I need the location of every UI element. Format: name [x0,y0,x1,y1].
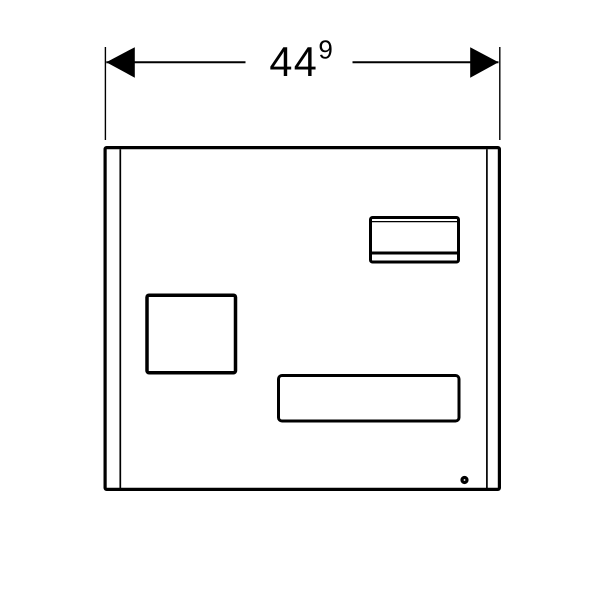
svg-text:9: 9 [318,34,332,64]
svg-text:44: 44 [269,39,318,85]
